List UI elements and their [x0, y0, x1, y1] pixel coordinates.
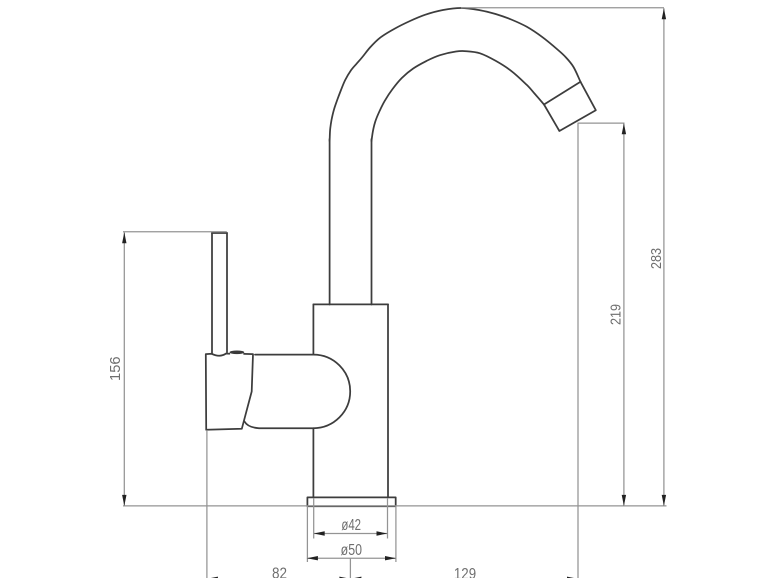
svg-text:283: 283	[648, 248, 665, 269]
svg-text:82: 82	[272, 565, 287, 578]
svg-text:219: 219	[608, 304, 625, 325]
svg-text:129: 129	[454, 566, 476, 578]
svg-text:156: 156	[107, 356, 124, 381]
svg-text:ø42: ø42	[341, 517, 361, 534]
svg-text:ø50: ø50	[341, 542, 362, 559]
